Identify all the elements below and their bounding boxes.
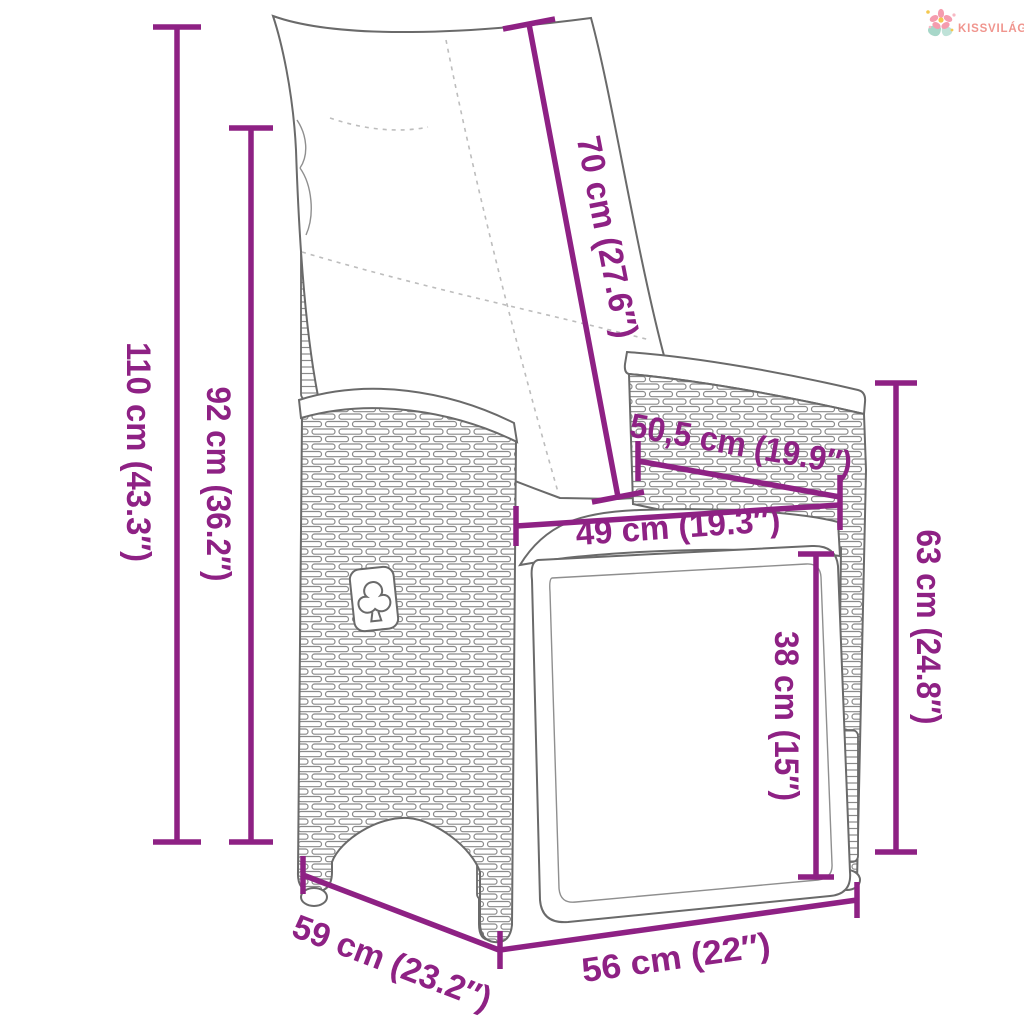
chair-line-drawing (273, 16, 866, 942)
dimension-side-height: 63 cm (24.8″) (875, 383, 947, 852)
dimension-label-depth: 59 cm (23.2″) (287, 908, 497, 1019)
brand-logo: KISSVILÁG (926, 9, 1024, 36)
left-side-panel (298, 406, 516, 942)
flower-icon (926, 9, 955, 36)
recline-knob (349, 566, 399, 632)
diagram-svg: 110 cm (43.3″) 92 cm (36.2″) 70 cm (27.6… (0, 0, 1024, 1024)
dimension-label-back-height: 92 cm (36.2″) (199, 387, 237, 582)
brand-name: KISSVILÁG (958, 22, 1024, 35)
dimension-label-total-height: 110 cm (43.3″) (119, 342, 157, 562)
dimension-total-height: 110 cm (43.3″) (119, 27, 201, 842)
dimension-depth: 59 cm (23.2″) (287, 856, 500, 1018)
dimension-label-seat-height: 38 cm (15″) (767, 631, 805, 801)
dimension-label-side-height: 63 cm (24.8″) (909, 530, 947, 725)
dimension-back-height: 92 cm (36.2″) (199, 128, 273, 842)
product-dimension-diagram: 110 cm (43.3″) 92 cm (36.2″) 70 cm (27.6… (0, 0, 1024, 1024)
